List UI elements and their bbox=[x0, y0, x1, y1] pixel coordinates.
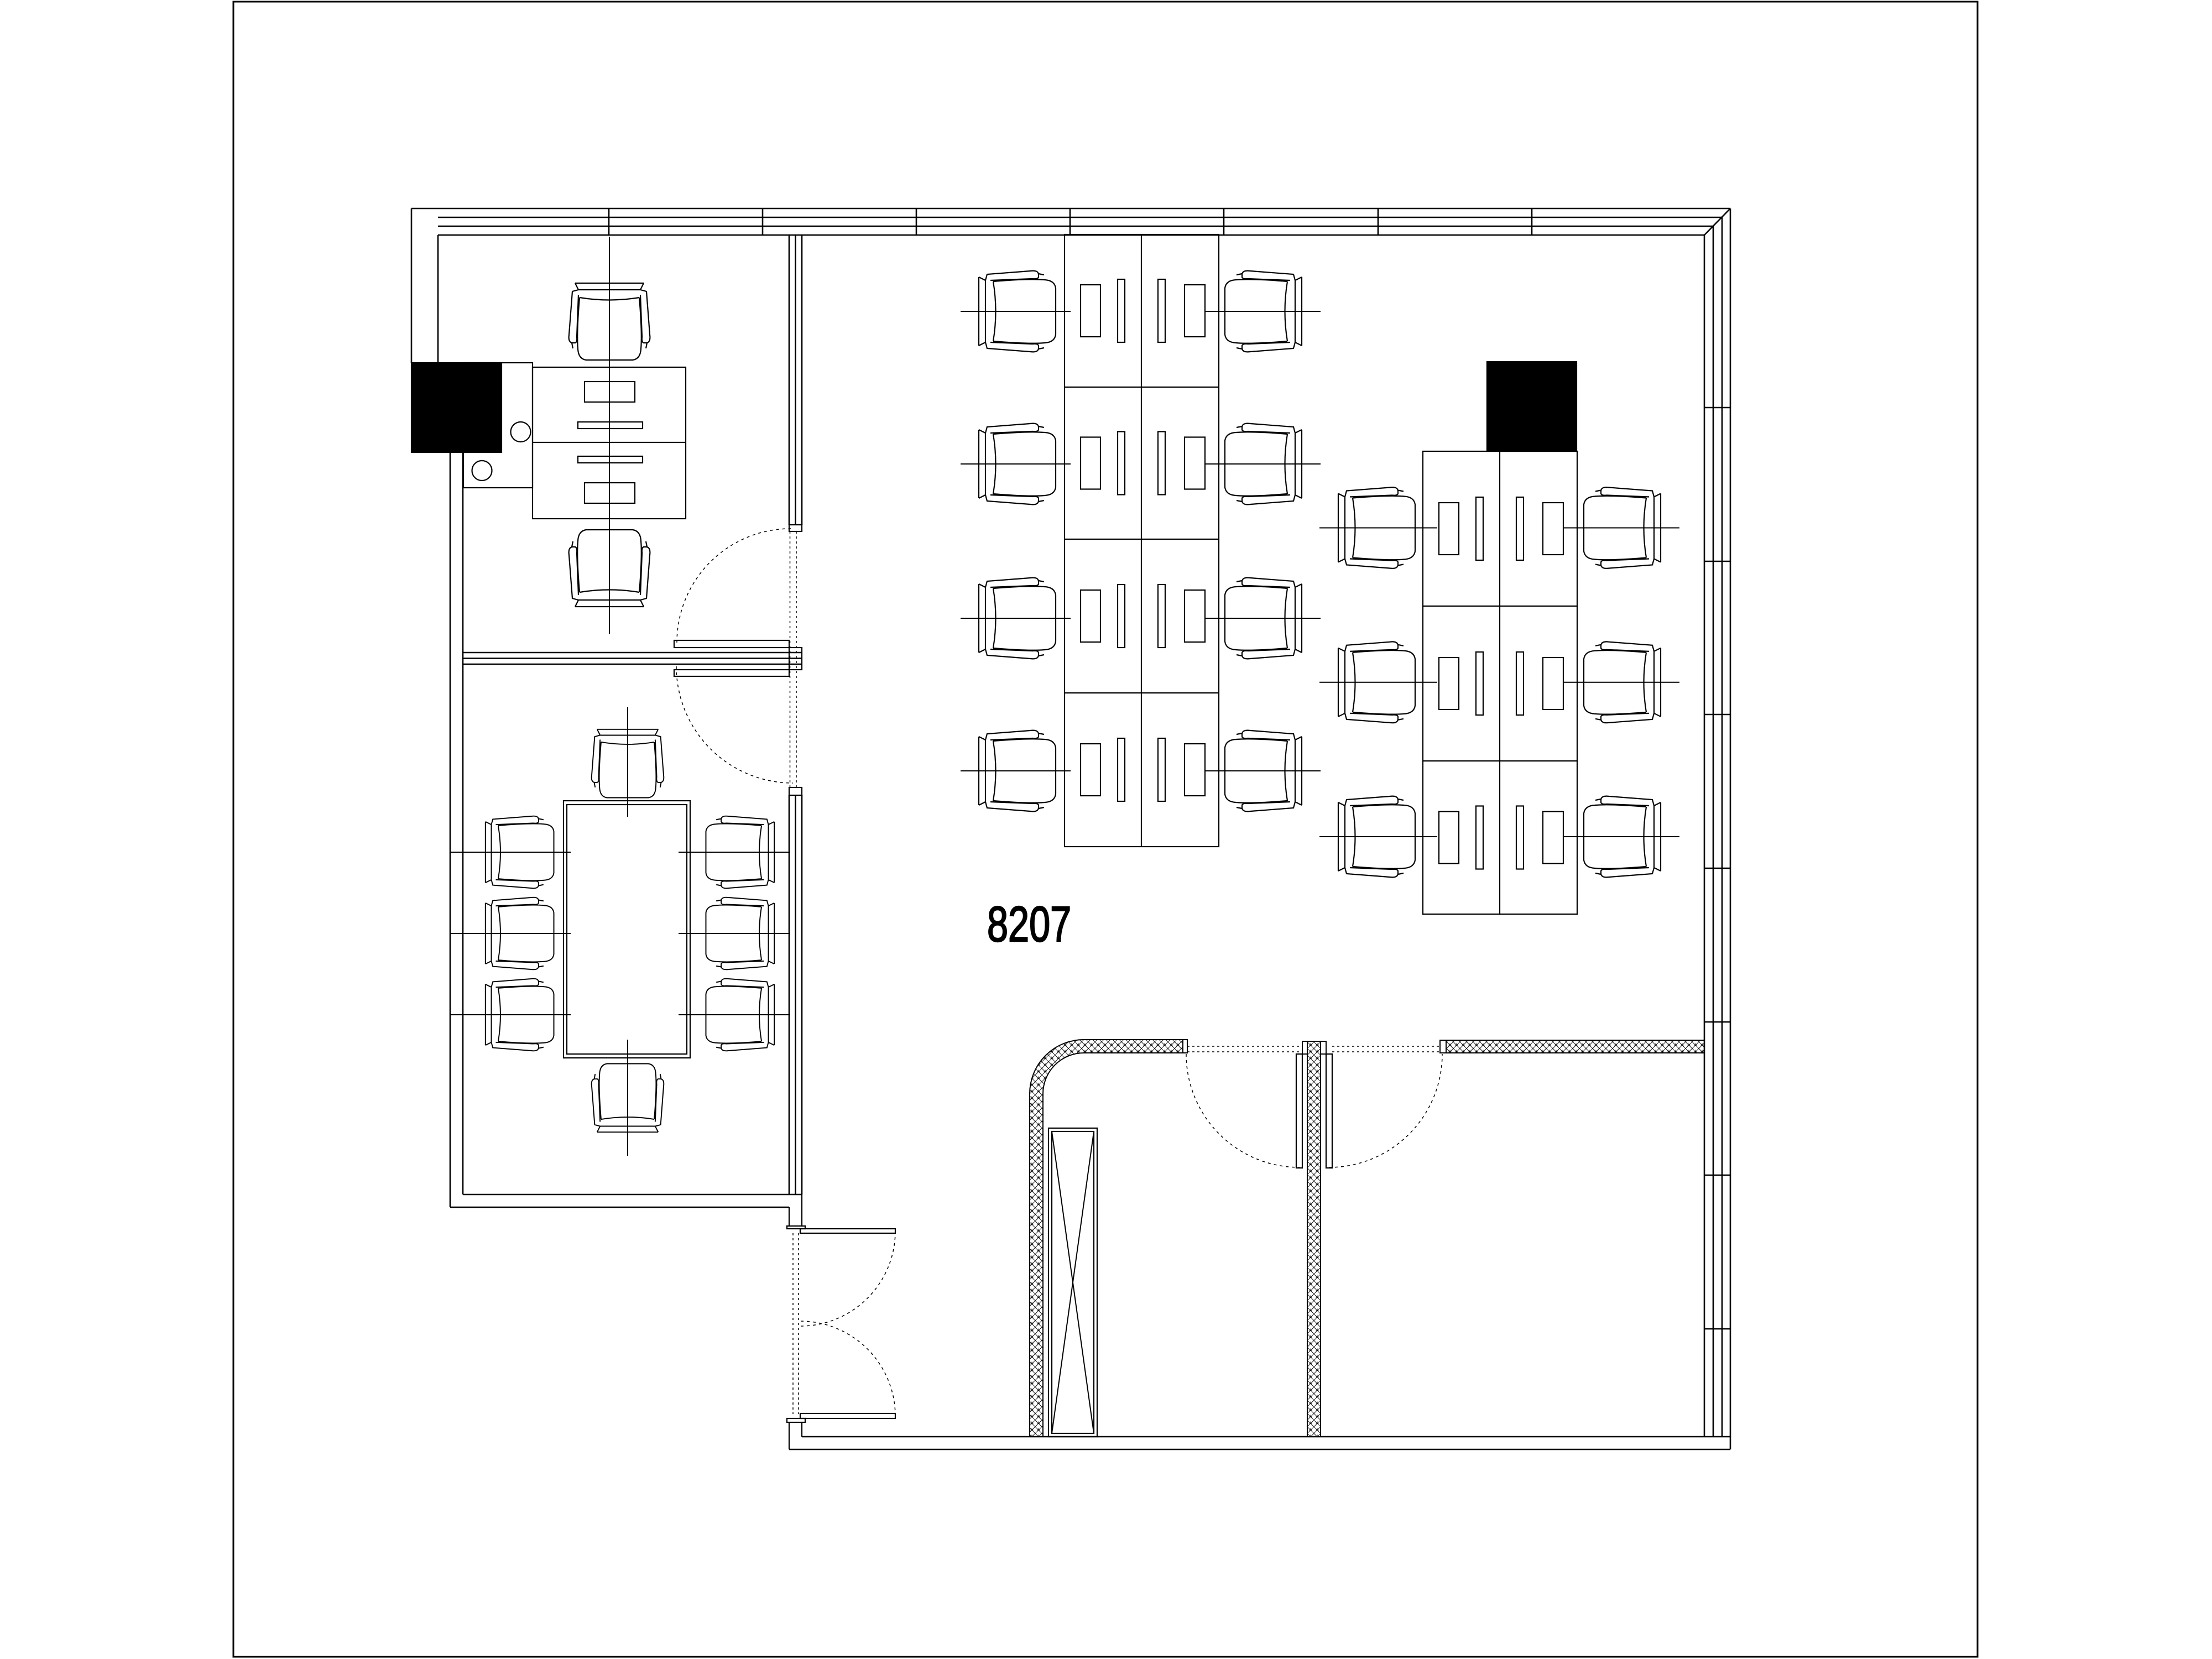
svg-text:8207: 8207 bbox=[987, 896, 1071, 952]
